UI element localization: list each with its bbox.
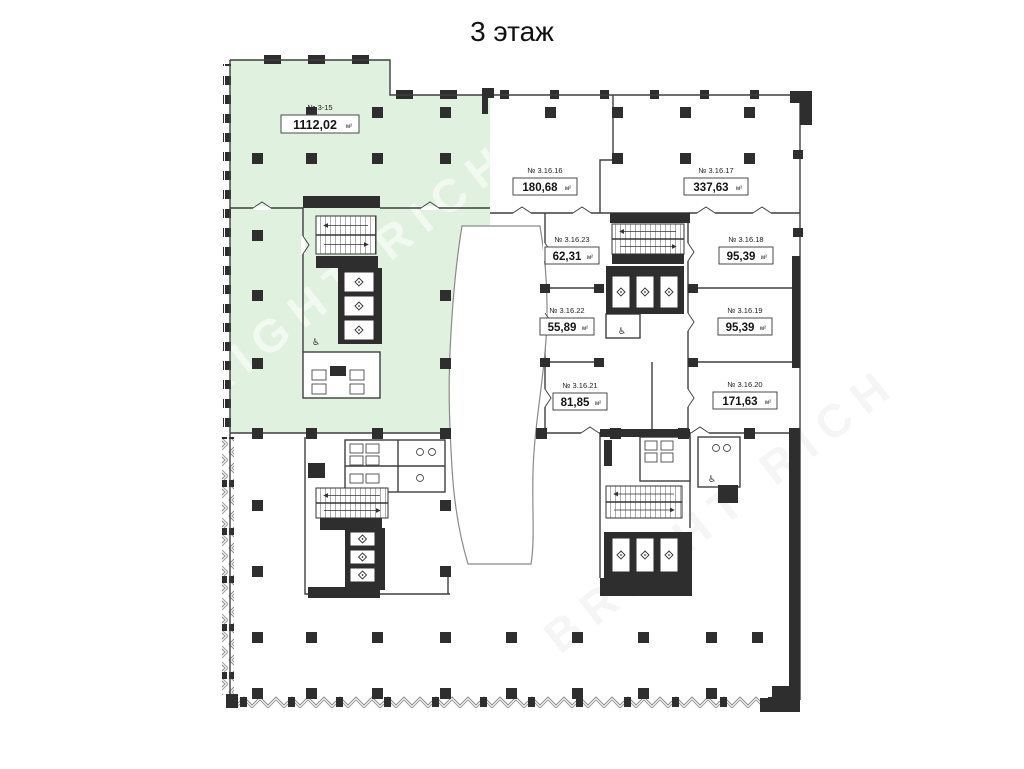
svg-text:№ 3.16.21: № 3.16.21 [562, 381, 597, 390]
svg-text:95,39: 95,39 [726, 322, 755, 334]
svg-text:м²: м² [765, 400, 771, 406]
floorplan-svg: BRIGHT RICH BRIGHT RICH [0, 0, 1024, 769]
svg-text:81,85: 81,85 [561, 397, 590, 409]
room-label-3-16-22[interactable]: № 3.16.22 55,89 м² [540, 306, 594, 335]
svg-text:62,31: 62,31 [553, 251, 582, 263]
svg-text:337,63: 337,63 [693, 182, 728, 194]
svg-text:№ 3-15: № 3-15 [307, 103, 332, 112]
svg-text:№ 3.16.17: № 3.16.17 [698, 166, 733, 175]
atrium-void [449, 226, 547, 564]
wheelchair-icon: ♿ [618, 326, 626, 336]
svg-text:м²: м² [346, 124, 352, 130]
svg-text:1112,02: 1112,02 [293, 118, 337, 132]
svg-text:171,63: 171,63 [722, 396, 757, 408]
svg-text:м²: м² [582, 326, 588, 332]
svg-text:м²: м² [760, 326, 766, 332]
svg-text:м²: м² [565, 186, 571, 192]
floorplan-canvas: 3 этаж [0, 0, 1024, 769]
svg-text:180,68: 180,68 [522, 182, 558, 194]
svg-text:№ 3.16.18: № 3.16.18 [728, 235, 763, 244]
room-label-3-16-23[interactable]: № 3.16.23 62,31 м² [545, 235, 599, 264]
room-label-3-16-17[interactable]: № 3.16.17 337,63 м² [684, 166, 748, 195]
svg-text:55,89: 55,89 [548, 322, 577, 334]
svg-text:м²: м² [736, 186, 742, 192]
svg-text:№ 3.16.22: № 3.16.22 [549, 306, 584, 315]
svg-text:№ 3.16.23: № 3.16.23 [554, 235, 589, 244]
curtain-wall-left [222, 437, 234, 695]
room-label-3-16-21[interactable]: № 3.16.21 81,85 м² [553, 381, 607, 410]
wheelchair-icon: ♿ [708, 474, 716, 484]
svg-text:95,39: 95,39 [727, 251, 756, 263]
svg-text:м²: м² [761, 255, 767, 261]
room-label-3-16-16[interactable]: № 3.16.16 180,68 м² [513, 166, 577, 195]
svg-text:№ 3.16.20: № 3.16.20 [727, 380, 762, 389]
svg-text:№ 3.16.19: № 3.16.19 [727, 306, 762, 315]
svg-text:м²: м² [587, 255, 593, 261]
svg-text:м²: м² [595, 401, 601, 407]
wheelchair-icon: ♿ [312, 337, 320, 347]
room-label-3-16-20[interactable]: № 3.16.20 171,63 м² [713, 380, 777, 409]
room-label-3-16-19[interactable]: № 3.16.19 95,39 м² [718, 306, 772, 335]
room-label-3-16-18[interactable]: № 3.16.18 95,39 м² [719, 235, 773, 264]
svg-text:№ 3.16.16: № 3.16.16 [527, 166, 562, 175]
